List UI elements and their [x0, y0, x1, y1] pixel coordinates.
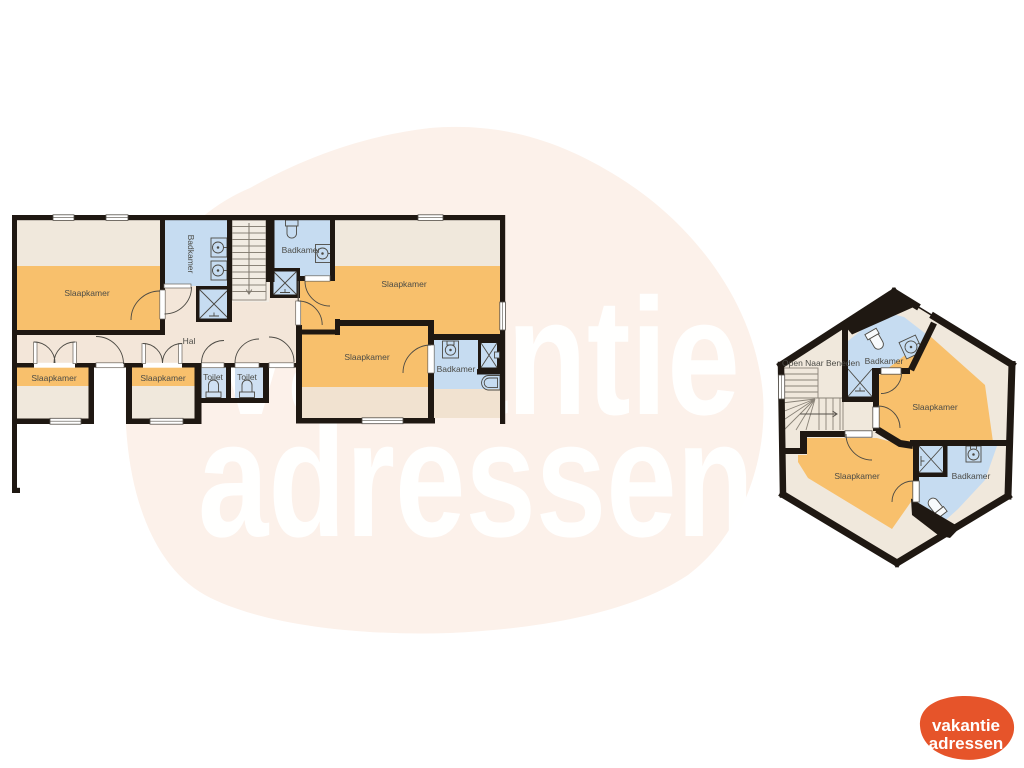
svg-text:Slaapkamer: Slaapkamer: [64, 288, 110, 298]
svg-text:Badkamer: Badkamer: [865, 356, 904, 366]
svg-text:vakantie: vakantie: [932, 716, 1000, 735]
svg-text:Slaapkamer: Slaapkamer: [912, 402, 958, 412]
svg-text:Slaapkamer: Slaapkamer: [381, 279, 427, 289]
svg-text:Hal: Hal: [183, 336, 196, 346]
svg-text:Badkamer: Badkamer: [282, 245, 321, 255]
svg-text:adressen: adressen: [929, 734, 1004, 753]
svg-text:Open Naar Beneden: Open Naar Beneden: [782, 358, 860, 368]
svg-text:Slaapkamer: Slaapkamer: [140, 373, 186, 383]
svg-text:Slaapkamer: Slaapkamer: [344, 352, 390, 362]
svg-text:Slaapkamer: Slaapkamer: [834, 471, 880, 481]
svg-text:Badkamer: Badkamer: [437, 364, 476, 374]
svg-text:Badkamer: Badkamer: [186, 235, 196, 274]
svg-text:Toilet: Toilet: [237, 372, 257, 382]
svg-text:Badkamer: Badkamer: [952, 471, 991, 481]
svg-text:Toilet: Toilet: [203, 372, 223, 382]
svg-text:Slaapkamer: Slaapkamer: [31, 373, 77, 383]
